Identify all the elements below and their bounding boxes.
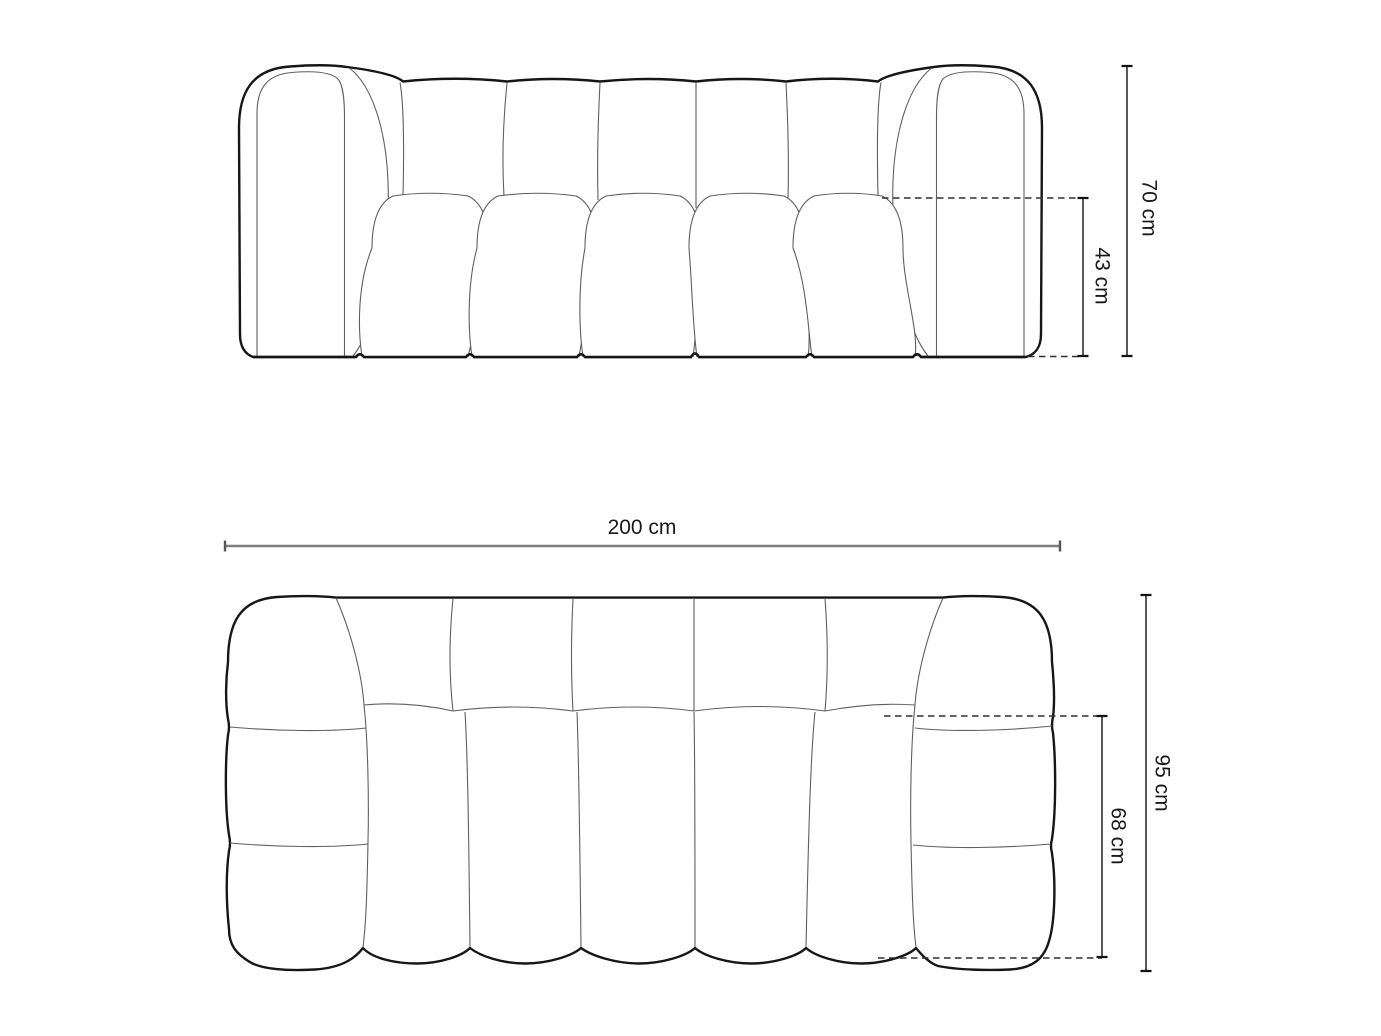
seat-depth-dimension-line (1097, 716, 1108, 957)
overall-depth-label: 95 cm (1151, 754, 1174, 811)
sofa-top-view-drawing (226, 596, 1055, 970)
seat-cushion (469, 193, 597, 357)
overall-height-dimension-line (1122, 66, 1133, 356)
front-view-seat-cushions (359, 193, 915, 357)
overall-width-label: 200 cm (608, 516, 677, 539)
seat-height-label: 43 cm (1091, 247, 1114, 304)
seat-cushion (689, 193, 809, 357)
diagram-canvas: 70 cm 43 cm 200 cm 95 cm 68 cm (0, 0, 1381, 1036)
overall-height-label: 70 cm (1138, 179, 1161, 236)
seat-cushion (793, 193, 916, 357)
sofa-front-view-drawing (239, 65, 1042, 357)
top-view-outline (226, 596, 1055, 970)
seat-depth-label: 68 cm (1107, 807, 1130, 864)
seat-height-dimension-line (1078, 198, 1089, 356)
overall-width-dimension-line (225, 541, 1060, 552)
sofa-dimension-diagram: 70 cm 43 cm 200 cm 95 cm 68 cm (0, 0, 1381, 1036)
overall-depth-dimension-line (1141, 595, 1152, 971)
seat-cushion (580, 193, 701, 357)
